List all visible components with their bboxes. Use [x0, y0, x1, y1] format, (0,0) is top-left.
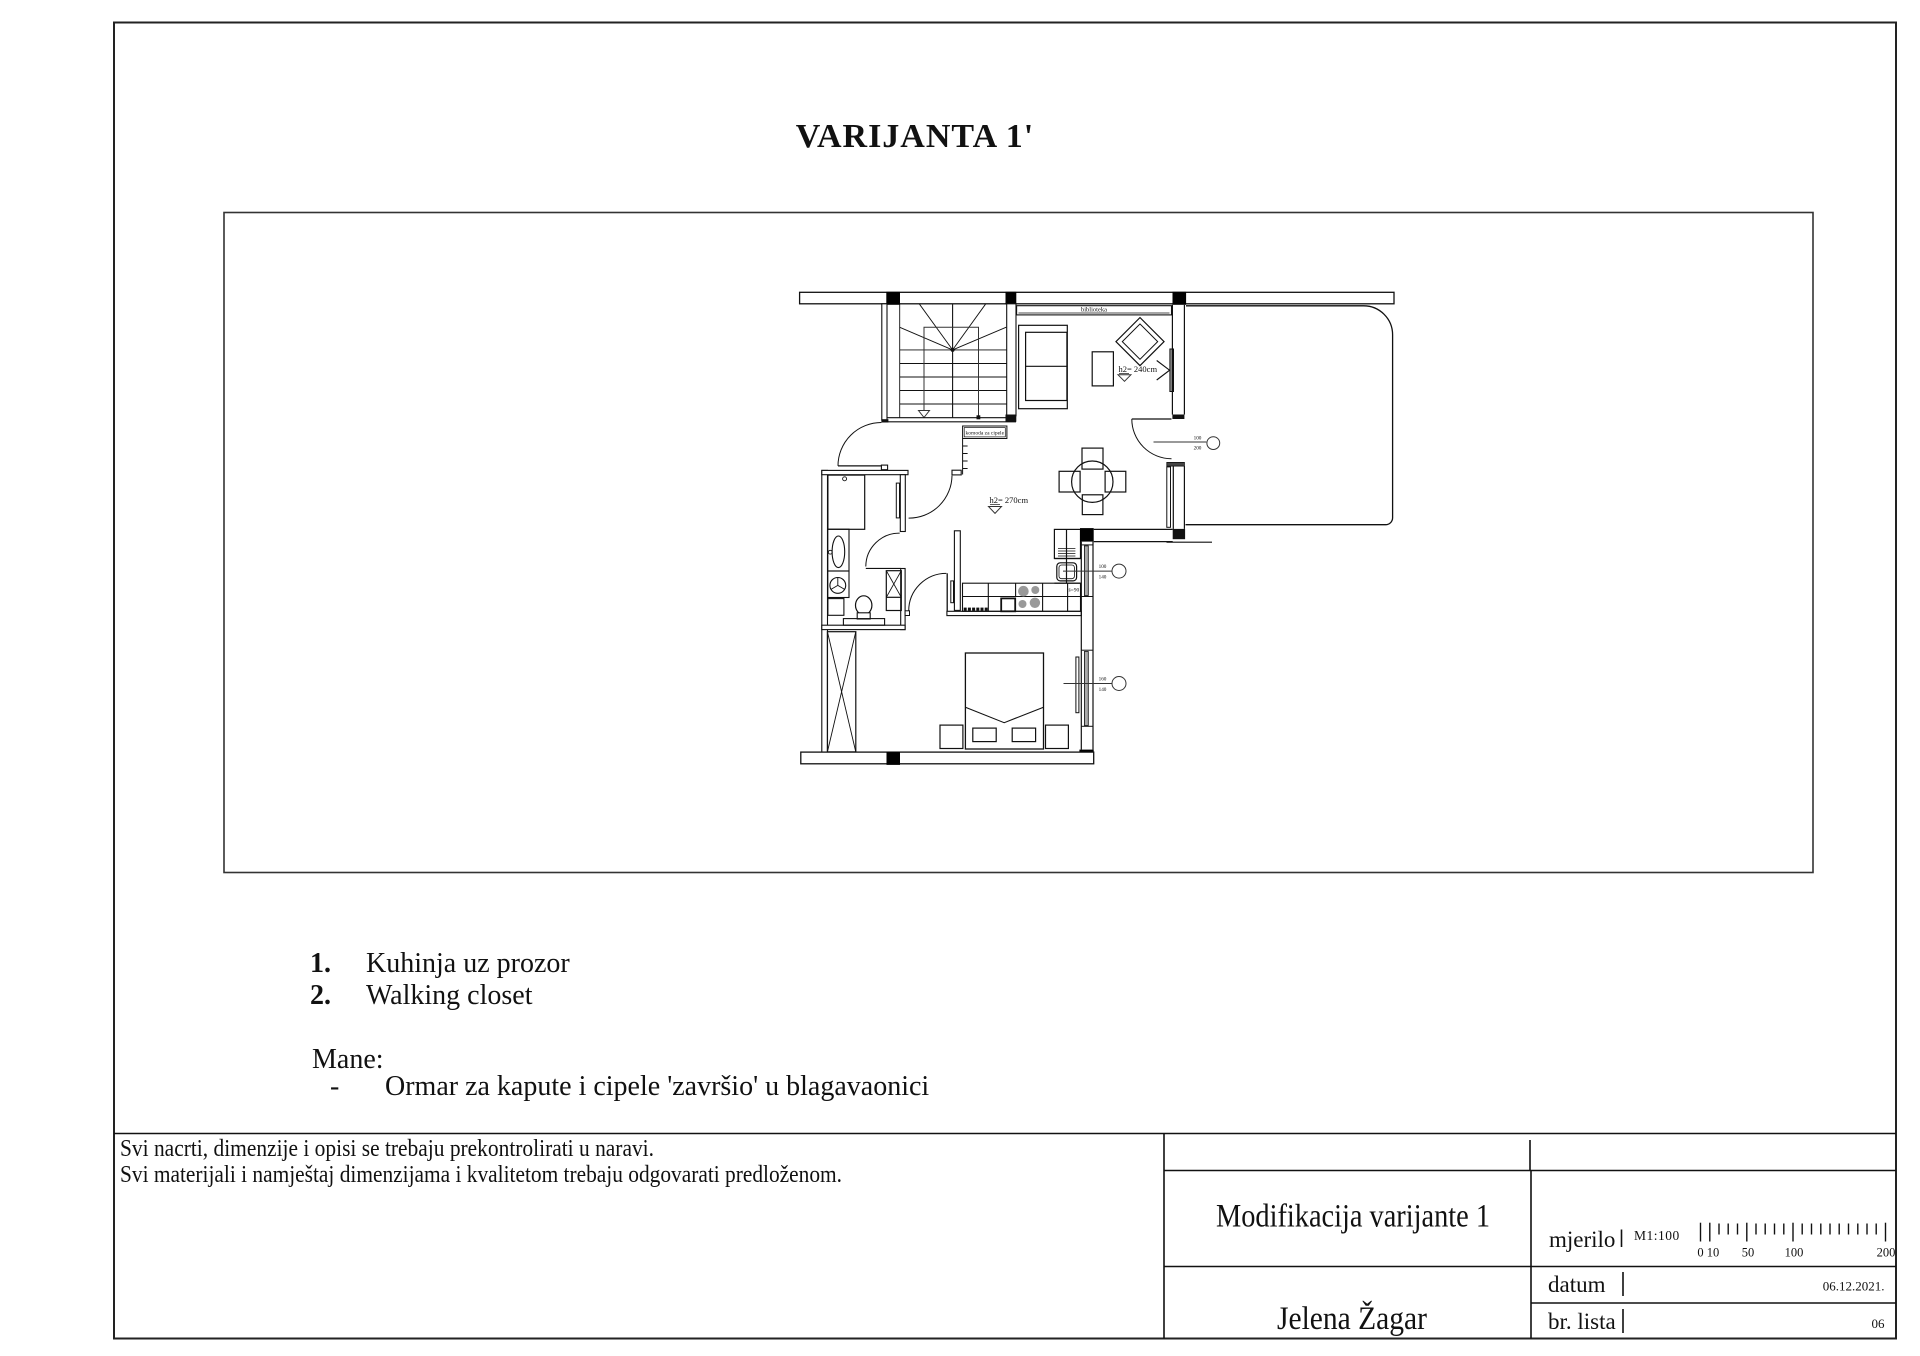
- svg-text:mjerilo: mjerilo: [1549, 1227, 1615, 1252]
- svg-text:M1:100: M1:100: [1634, 1228, 1680, 1243]
- svg-text:Modifikacija varijante 1: Modifikacija varijante 1: [1216, 1199, 1490, 1235]
- svg-text:-Ormar za kapute i cipele 'zav: -Ormar za kapute i cipele 'završio' u bl…: [330, 1071, 929, 1102]
- svg-text:50: 50: [1742, 1246, 1755, 1260]
- svg-text:š=90: š=90: [1069, 588, 1080, 594]
- svg-text:h2= 240cm: h2= 240cm: [1119, 364, 1158, 374]
- svg-text:06.12.2021.: 06.12.2021.: [1823, 1279, 1885, 1294]
- svg-text:200: 200: [1877, 1246, 1896, 1260]
- svg-text:Jelena Žagar: Jelena Žagar: [1277, 1300, 1427, 1337]
- svg-text:h2= 270cm: h2= 270cm: [990, 495, 1029, 505]
- svg-text:200: 200: [1194, 446, 1202, 452]
- svg-text:komoda za cipele: komoda za cipele: [966, 431, 1005, 437]
- svg-text:100: 100: [1194, 436, 1202, 442]
- svg-text:br. lista: br. lista: [1548, 1309, 1616, 1334]
- svg-text:10: 10: [1707, 1246, 1720, 1260]
- svg-text:datum: datum: [1548, 1272, 1606, 1297]
- svg-text:140: 140: [1099, 687, 1107, 693]
- svg-text:100: 100: [1099, 564, 1107, 570]
- svg-text:Svi materijali i namještaj dim: Svi materijali i namještaj dimenzijama i…: [120, 1162, 842, 1188]
- svg-text:VARIJANTA 1': VARIJANTA 1': [796, 118, 1034, 155]
- svg-text:140: 140: [1099, 575, 1107, 581]
- svg-text:biblioteka: biblioteka: [1081, 307, 1107, 314]
- svg-text:0: 0: [1697, 1246, 1703, 1260]
- svg-text:06: 06: [1872, 1316, 1886, 1331]
- svg-text:Mane:: Mane:: [312, 1044, 384, 1075]
- svg-text:160: 160: [1099, 677, 1107, 683]
- svg-text:Svi nacrti, dimenzije i opisi: Svi nacrti, dimenzije i opisi se trebaju…: [120, 1136, 654, 1162]
- svg-text:100: 100: [1785, 1246, 1804, 1260]
